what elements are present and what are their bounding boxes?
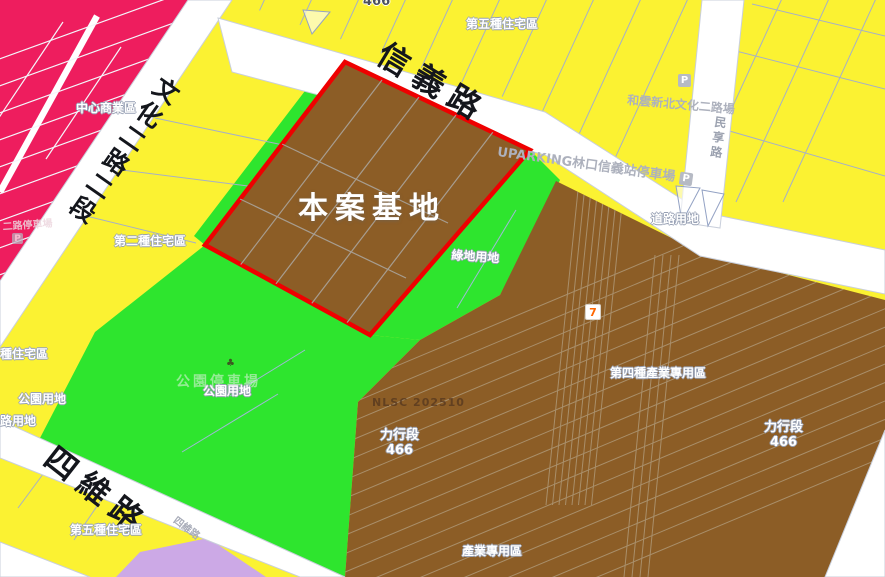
- zone-label-res2: 第二種住宅區: [114, 232, 186, 249]
- zone-label-res-partial: 種住宅區: [0, 345, 48, 362]
- zone-label-park-land-left: 公園用地: [18, 390, 66, 407]
- lixing-section: 力行段: [380, 428, 419, 443]
- parking-icon: P: [12, 233, 23, 244]
- seven-glyph: 7: [589, 306, 597, 319]
- map-source-watermark: NLSC 202510: [372, 396, 465, 409]
- seven-eleven-icon: 7: [585, 304, 601, 320]
- zone-label-road-land: 道路用地: [651, 210, 699, 227]
- zone-label-road-land-partial: 路用地: [0, 412, 36, 429]
- zoning-map[interactable]: 信義路 文化二路二段 四維路 民享路 四維路 本案基地 中心商業區 第五種住宅區…: [0, 0, 885, 577]
- parking-icon: P: [679, 172, 694, 187]
- zone-label-industry4: 第四種產業專用區: [610, 364, 706, 381]
- zone-label-center-business: 中心商業區: [76, 99, 136, 116]
- park-tree-icon: ♣: [226, 358, 235, 369]
- zone-label-green-land: 綠地用地: [451, 246, 500, 266]
- parking-label-park: 公園停車場: [176, 371, 261, 391]
- lixing-number: 466: [380, 443, 419, 458]
- lot-466-top: 466: [363, 0, 390, 9]
- zone-label-res5-top: 第五種住宅區: [466, 15, 538, 32]
- zone-label-lixing-right: 力行段 466: [764, 420, 803, 450]
- zone-label-industry: 產業專用區: [462, 542, 522, 559]
- zone-label-lixing-center: 力行段 466: [380, 428, 419, 458]
- lixing-number: 466: [764, 435, 803, 450]
- site-label: 本案基地: [298, 183, 446, 227]
- parking-icon: P: [678, 74, 691, 87]
- lixing-section: 力行段: [764, 420, 803, 435]
- zone-label-res5-bottom: 第五種住宅區: [70, 521, 142, 538]
